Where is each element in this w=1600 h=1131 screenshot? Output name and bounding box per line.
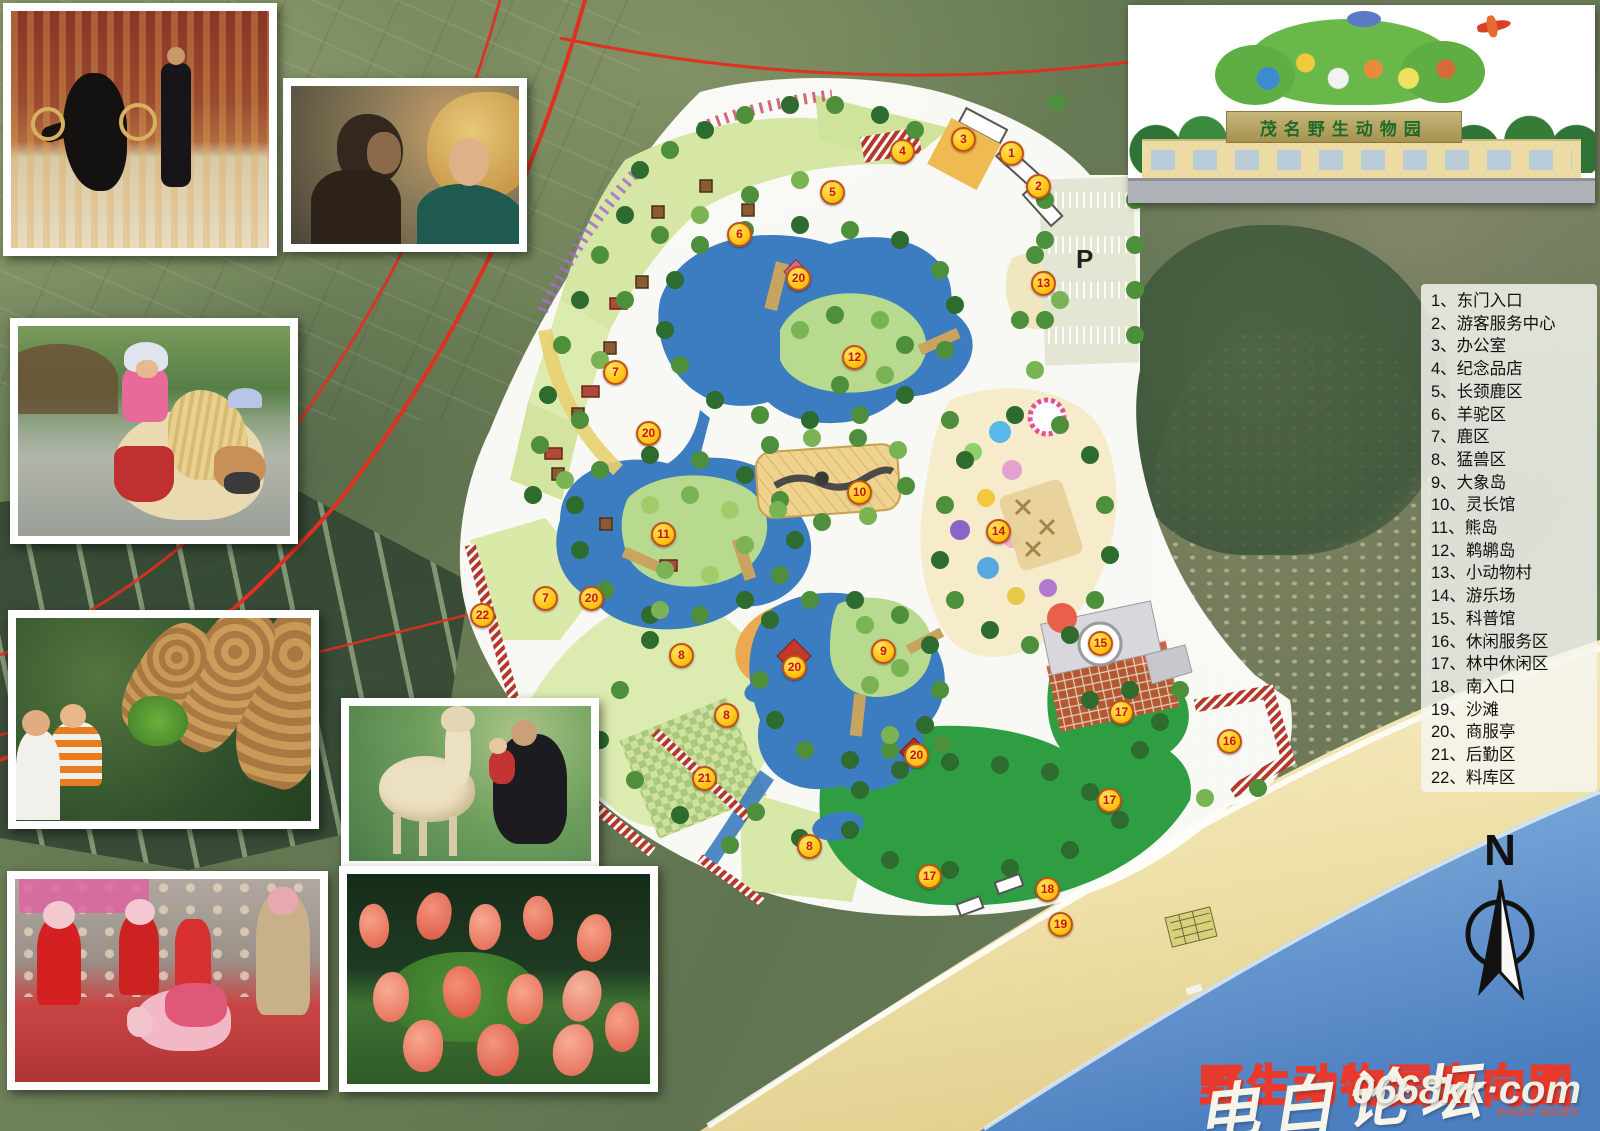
- photo-bear-circus: [3, 3, 277, 256]
- legend-item: 2、游客服务中心: [1431, 313, 1597, 336]
- legend-item: 12、鹈鹕岛: [1431, 540, 1597, 563]
- north-indicator: N: [1455, 828, 1545, 1018]
- chimpanzee-image: [291, 86, 519, 244]
- map-marker-8: 8: [669, 643, 694, 668]
- entrance-rendering-panel: 茂名野生动物园: [1128, 5, 1595, 203]
- alpaca-image: [349, 706, 591, 861]
- giraffe-feeding-image: [16, 618, 311, 821]
- legend-item: 22、料库区: [1431, 767, 1597, 790]
- map-marker-8: 8: [714, 703, 739, 728]
- legend-item: 11、熊岛: [1431, 517, 1597, 540]
- bear-circus-image: [11, 11, 269, 248]
- map-marker-7: 7: [533, 586, 558, 611]
- photo-alpaca: [341, 698, 599, 869]
- legend-item: 7、鹿区: [1431, 426, 1597, 449]
- pony-ride-image: [18, 326, 290, 536]
- photo-child-on-pony: [10, 318, 298, 544]
- map-marker-1: 1: [999, 141, 1024, 166]
- legend-list: 1、东门入口2、游客服务中心3、办公室4、纪念品店5、长颈鹿区6、羊驼区7、鹿区…: [1431, 290, 1597, 789]
- map-marker-13: 13: [1031, 271, 1056, 296]
- legend-item: 19、沙滩: [1431, 699, 1597, 722]
- map-marker-15: 15: [1088, 631, 1113, 656]
- map-marker-2: 2: [1026, 174, 1051, 199]
- pig-performance-image: [15, 879, 320, 1082]
- legend-item: 9、大象岛: [1431, 472, 1597, 495]
- legend-item: 4、纪念品店: [1431, 358, 1597, 381]
- legend-item: 13、小动物村: [1431, 562, 1597, 585]
- map-marker-5: 5: [820, 180, 845, 205]
- map-marker-17: 17: [1097, 788, 1122, 813]
- legend-item: 3、办公室: [1431, 335, 1597, 358]
- entrance-cartoon-animals: [1240, 35, 1474, 97]
- map-marker-17: 17: [1109, 700, 1134, 725]
- map-marker-12: 12: [842, 345, 867, 370]
- entrance-building: [1142, 139, 1581, 181]
- map-marker-20: 20: [786, 266, 811, 291]
- map-marker-20: 20: [782, 655, 807, 680]
- map-marker-8: 8: [797, 834, 822, 859]
- photo-flamingos: [339, 866, 658, 1092]
- map-marker-14: 14: [986, 519, 1011, 544]
- legend-item: 16、休闲服务区: [1431, 631, 1597, 654]
- legend-item: 10、灵长馆: [1431, 494, 1597, 517]
- legend-item: 17、林中休闲区: [1431, 653, 1597, 676]
- photo-giraffe-feeding: [8, 610, 319, 829]
- map-marker-3: 3: [951, 127, 976, 152]
- north-label: N: [1455, 828, 1545, 874]
- poster: P 12345677888910111213141516171717181920…: [0, 0, 1600, 1131]
- map-marker-18: 18: [1035, 877, 1060, 902]
- map-marker-11: 11: [651, 522, 676, 547]
- map-marker-21: 21: [692, 766, 717, 791]
- legend-panel: 1、东门入口2、游客服务中心3、办公室4、纪念品店5、长颈鹿区6、羊驼区7、鹿区…: [1421, 284, 1597, 792]
- entrance-road: [1128, 178, 1595, 203]
- map-marker-19: 19: [1048, 912, 1073, 937]
- entrance-sign: 茂名野生动物园: [1226, 111, 1462, 143]
- map-marker-7: 7: [603, 360, 628, 385]
- map-marker-20: 20: [904, 743, 929, 768]
- legend-item: 5、长颈鹿区: [1431, 381, 1597, 404]
- map-marker-10: 10: [847, 480, 872, 505]
- legend-item: 8、猛兽区: [1431, 449, 1597, 472]
- legend-item: 20、商服亭: [1431, 721, 1597, 744]
- map-marker-22: 22: [470, 603, 495, 628]
- map-marker-4: 4: [890, 139, 915, 164]
- legend-item: 15、科普馆: [1431, 608, 1597, 631]
- compass-arrow-icon: [1460, 874, 1540, 1004]
- legend-item: 18、南入口: [1431, 676, 1597, 699]
- legend-item: 6、羊驼区: [1431, 404, 1597, 427]
- map-marker-20: 20: [579, 586, 604, 611]
- map-marker-9: 9: [871, 639, 896, 664]
- flamingo-image: [347, 874, 650, 1084]
- map-marker-20: 20: [636, 421, 661, 446]
- plane-icon: [1476, 18, 1511, 34]
- legend-item: 14、游乐场: [1431, 585, 1597, 608]
- entrance-sign-text: 茂名野生动物园: [1260, 115, 1428, 140]
- legend-item: 1、东门入口: [1431, 290, 1597, 313]
- parking-label: P: [1076, 244, 1093, 275]
- photo-pig-performance: [7, 871, 328, 1090]
- map-marker-6: 6: [727, 222, 752, 247]
- photo-chimpanzee: [283, 78, 527, 252]
- map-marker-16: 16: [1217, 729, 1242, 754]
- legend-item: 21、后勤区: [1431, 744, 1597, 767]
- map-marker-17: 17: [917, 864, 942, 889]
- watermark-small: 南海首粤 海影媒体: [1496, 1104, 1579, 1119]
